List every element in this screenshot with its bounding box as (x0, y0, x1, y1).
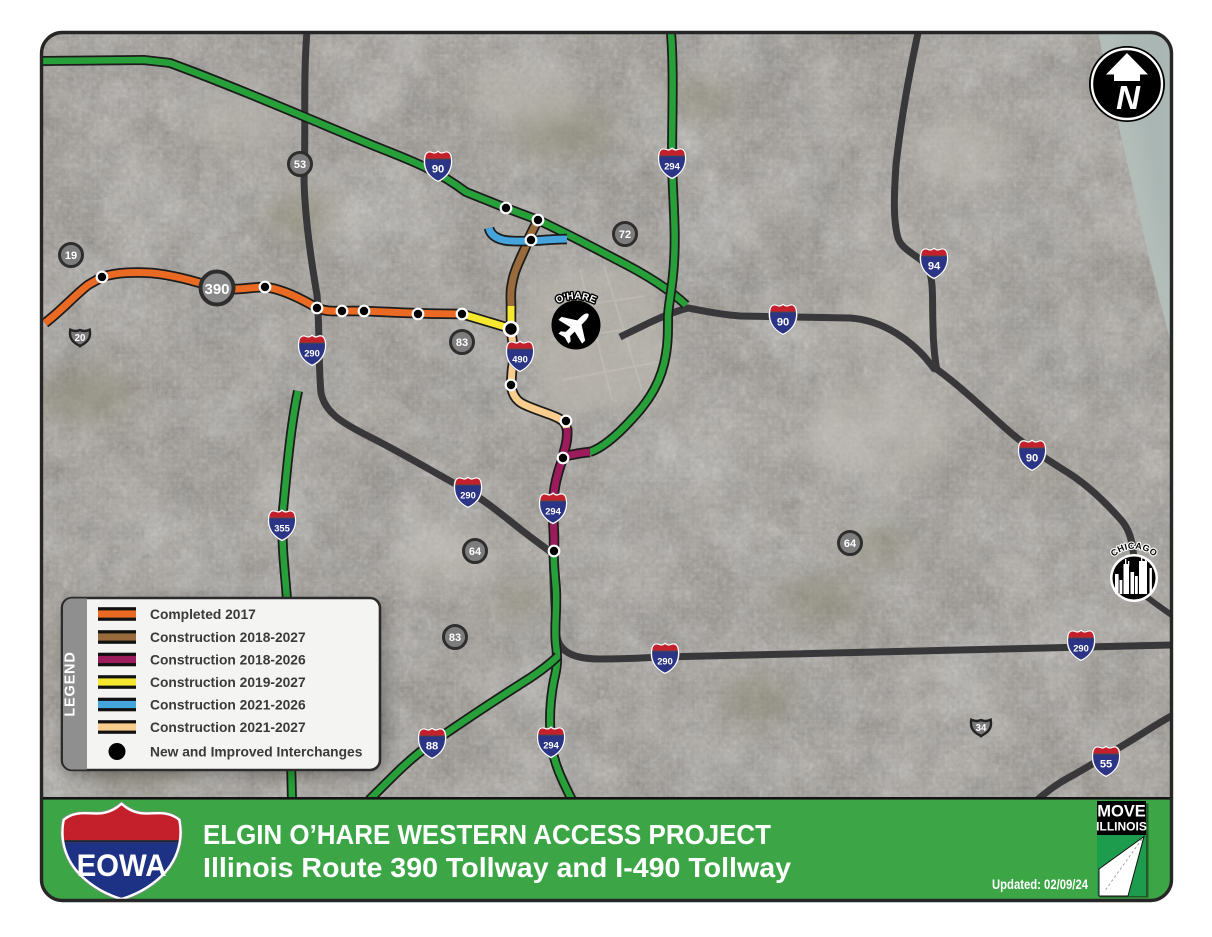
svg-text:294: 294 (664, 162, 680, 172)
svg-text:N: N (1116, 79, 1141, 116)
svg-text:Construction 2018-2027: Construction 2018-2027 (150, 630, 306, 645)
svg-text:290: 290 (304, 349, 320, 359)
svg-text:ILLINOIS: ILLINOIS (1096, 820, 1147, 834)
svg-text:64: 64 (844, 538, 857, 550)
svg-text:20: 20 (75, 333, 86, 344)
svg-text:Updated: 02/09/24: Updated: 02/09/24 (992, 877, 1088, 892)
svg-text:New and Improved Interchanges: New and Improved Interchanges (150, 744, 363, 759)
svg-text:290: 290 (460, 491, 476, 501)
svg-text:294: 294 (543, 741, 559, 751)
svg-text:ELGIN O’HARE WESTERN ACCESS PR: ELGIN O’HARE WESTERN ACCESS PROJECT (203, 819, 771, 850)
svg-text:MOVE: MOVE (1097, 803, 1146, 821)
svg-text:Construction 2021-2027: Construction 2021-2027 (150, 720, 306, 735)
svg-text:LEGEND: LEGEND (63, 651, 79, 716)
svg-text:390: 390 (204, 281, 229, 298)
svg-text:72: 72 (619, 229, 631, 241)
svg-text:53: 53 (294, 159, 306, 171)
svg-text:94: 94 (928, 261, 941, 273)
svg-text:294: 294 (545, 507, 561, 517)
svg-text:90: 90 (777, 317, 789, 329)
svg-text:64: 64 (469, 546, 482, 558)
svg-text:55: 55 (1100, 759, 1112, 771)
svg-text:Construction 2019-2027: Construction 2019-2027 (150, 675, 306, 690)
svg-text:90: 90 (432, 164, 444, 176)
svg-text:90: 90 (1026, 453, 1038, 465)
svg-text:290: 290 (1073, 644, 1089, 654)
svg-text:83: 83 (456, 337, 468, 349)
svg-text:Illinois Route 390 Tollway and: Illinois Route 390 Tollway and I-490 Tol… (203, 852, 792, 883)
svg-text:EOWA: EOWA (77, 848, 167, 883)
svg-text:Completed 2017: Completed 2017 (150, 607, 256, 622)
svg-text:83: 83 (449, 632, 461, 644)
svg-text:290: 290 (657, 657, 673, 667)
svg-text:355: 355 (274, 524, 290, 534)
svg-text:Construction 2018-2026: Construction 2018-2026 (150, 652, 306, 667)
svg-text:19: 19 (65, 250, 77, 262)
svg-text:88: 88 (426, 741, 438, 753)
svg-text:Construction 2021-2026: Construction 2021-2026 (150, 697, 306, 712)
svg-text:490: 490 (512, 355, 528, 365)
svg-text:34: 34 (976, 723, 987, 734)
